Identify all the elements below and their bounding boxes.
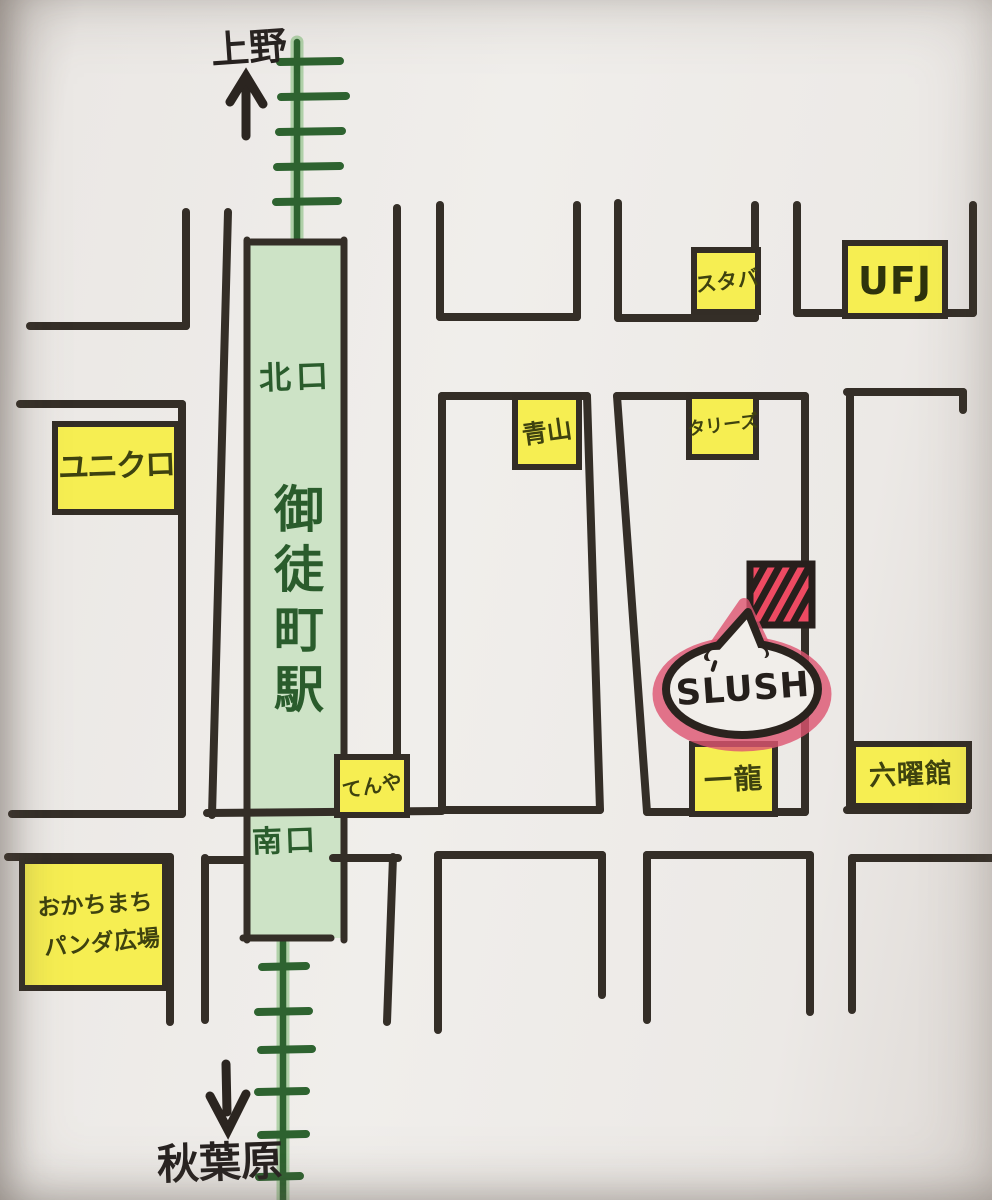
- station-north-exit-label: 北口: [258, 360, 333, 395]
- landmark-label-rokuyokan: 六曜館: [869, 760, 954, 790]
- landmark-label-ichiryu: 一龍: [703, 764, 764, 795]
- hand-drawn-map: 上野 秋葉原 北口 御徒町駅 南口 ユニクロ スタバ UFJ 青山 タリーズ て…: [0, 0, 992, 1200]
- south-arrow: [210, 1064, 246, 1130]
- panda-plaza-box: [22, 861, 165, 988]
- station-south-exit-label: 南口: [251, 826, 318, 858]
- station-name-label: 御徒町駅: [270, 483, 320, 723]
- destination-label-slush: SLUSH: [675, 668, 811, 712]
- direction-label-ueno: 上野: [210, 26, 288, 69]
- landmark-label-ufj: UFJ: [858, 262, 932, 300]
- landmark-label-aoyama: 青山: [520, 416, 573, 448]
- map-drawing: [0, 0, 992, 1200]
- landmark-boxes: [22, 243, 969, 988]
- landmark-label-uniqlo: ユニクロ: [57, 449, 174, 484]
- direction-label-akihabara: 秋葉原: [156, 1140, 283, 1186]
- north-arrow: [230, 76, 263, 136]
- landmark-label-panda-plaza-line1: おかちまち: [37, 892, 153, 921]
